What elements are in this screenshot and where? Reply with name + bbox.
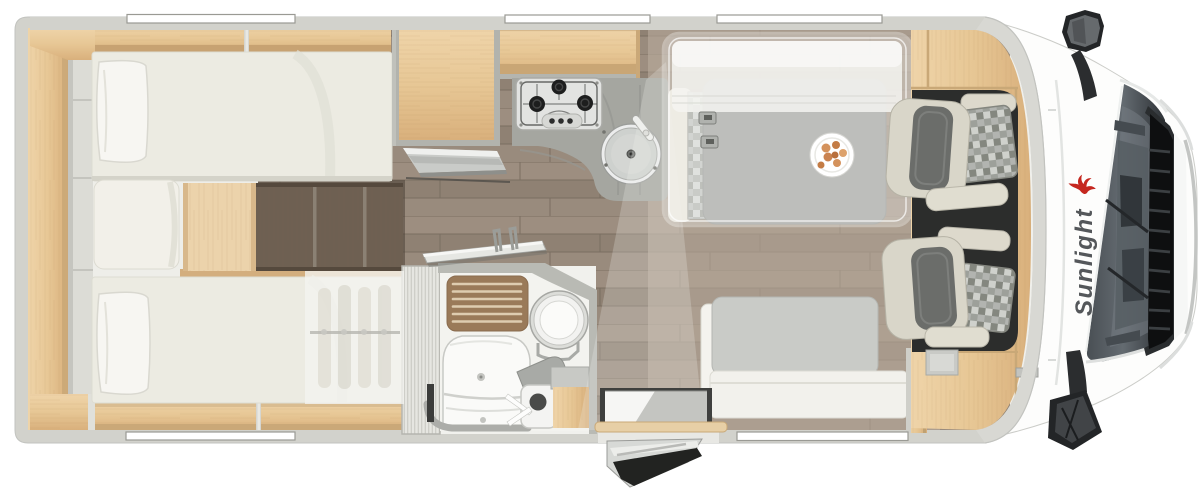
svg-text:Sunlight: Sunlight xyxy=(1071,208,1098,316)
